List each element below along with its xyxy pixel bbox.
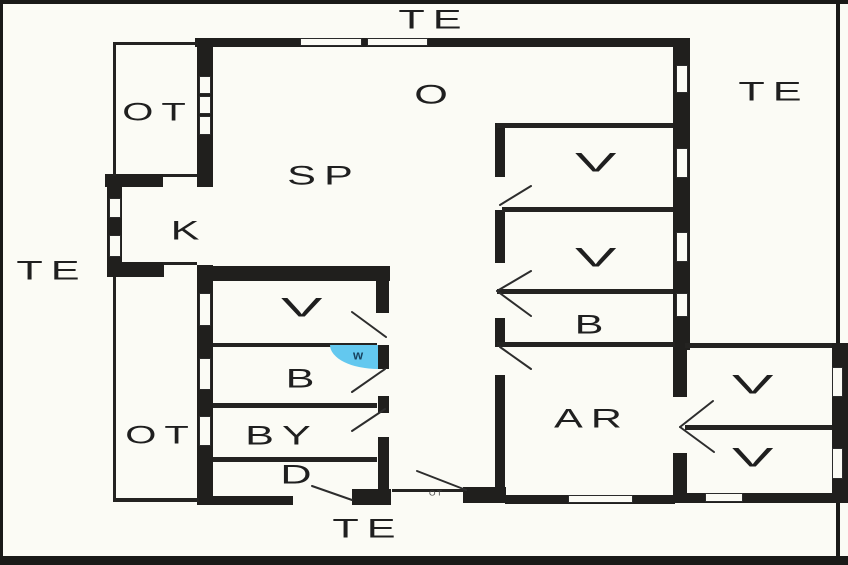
door-swing — [680, 401, 713, 427]
room-label-b-left: B — [278, 366, 323, 393]
door-swing — [417, 471, 466, 490]
room-label-d: D — [272, 462, 319, 489]
door-swing — [500, 186, 531, 205]
room-label-o: O — [406, 82, 456, 109]
terrace-label-top: TE — [390, 7, 469, 34]
terrace-label-bottom: TE — [324, 516, 403, 543]
room-label-v-right-2: V — [564, 245, 617, 272]
room-label-ot-lower: OT — [117, 424, 197, 449]
door-swing — [352, 409, 385, 431]
terrace-label-left: TE — [8, 258, 87, 285]
door-swing — [497, 271, 531, 291]
door-swing — [500, 347, 531, 369]
room-label-v-right-1: V — [564, 150, 617, 177]
entrance-label-ot: OT — [429, 491, 443, 498]
room-label-by: BY — [237, 423, 319, 450]
water-fixture-label: w — [353, 349, 363, 362]
room-label-v-annex-2: V — [721, 445, 774, 472]
room-label-v-left: V — [270, 295, 323, 322]
door-swing — [497, 291, 531, 316]
room-label-k: K — [163, 218, 208, 245]
door-swing — [352, 369, 385, 392]
room-label-v-annex-1: V — [721, 372, 774, 399]
room-label-ar: AR — [546, 406, 630, 433]
floor-plan: w TE TE TE TE OT OT O SP K V V B V B BY … — [0, 0, 848, 565]
room-label-b-right: B — [567, 312, 612, 339]
door-swing — [680, 427, 714, 452]
room-label-sp: SP — [279, 163, 361, 190]
room-label-ot-upper: OT — [114, 101, 194, 126]
door-swing — [352, 312, 386, 337]
terrace-label-right: TE — [730, 79, 809, 106]
